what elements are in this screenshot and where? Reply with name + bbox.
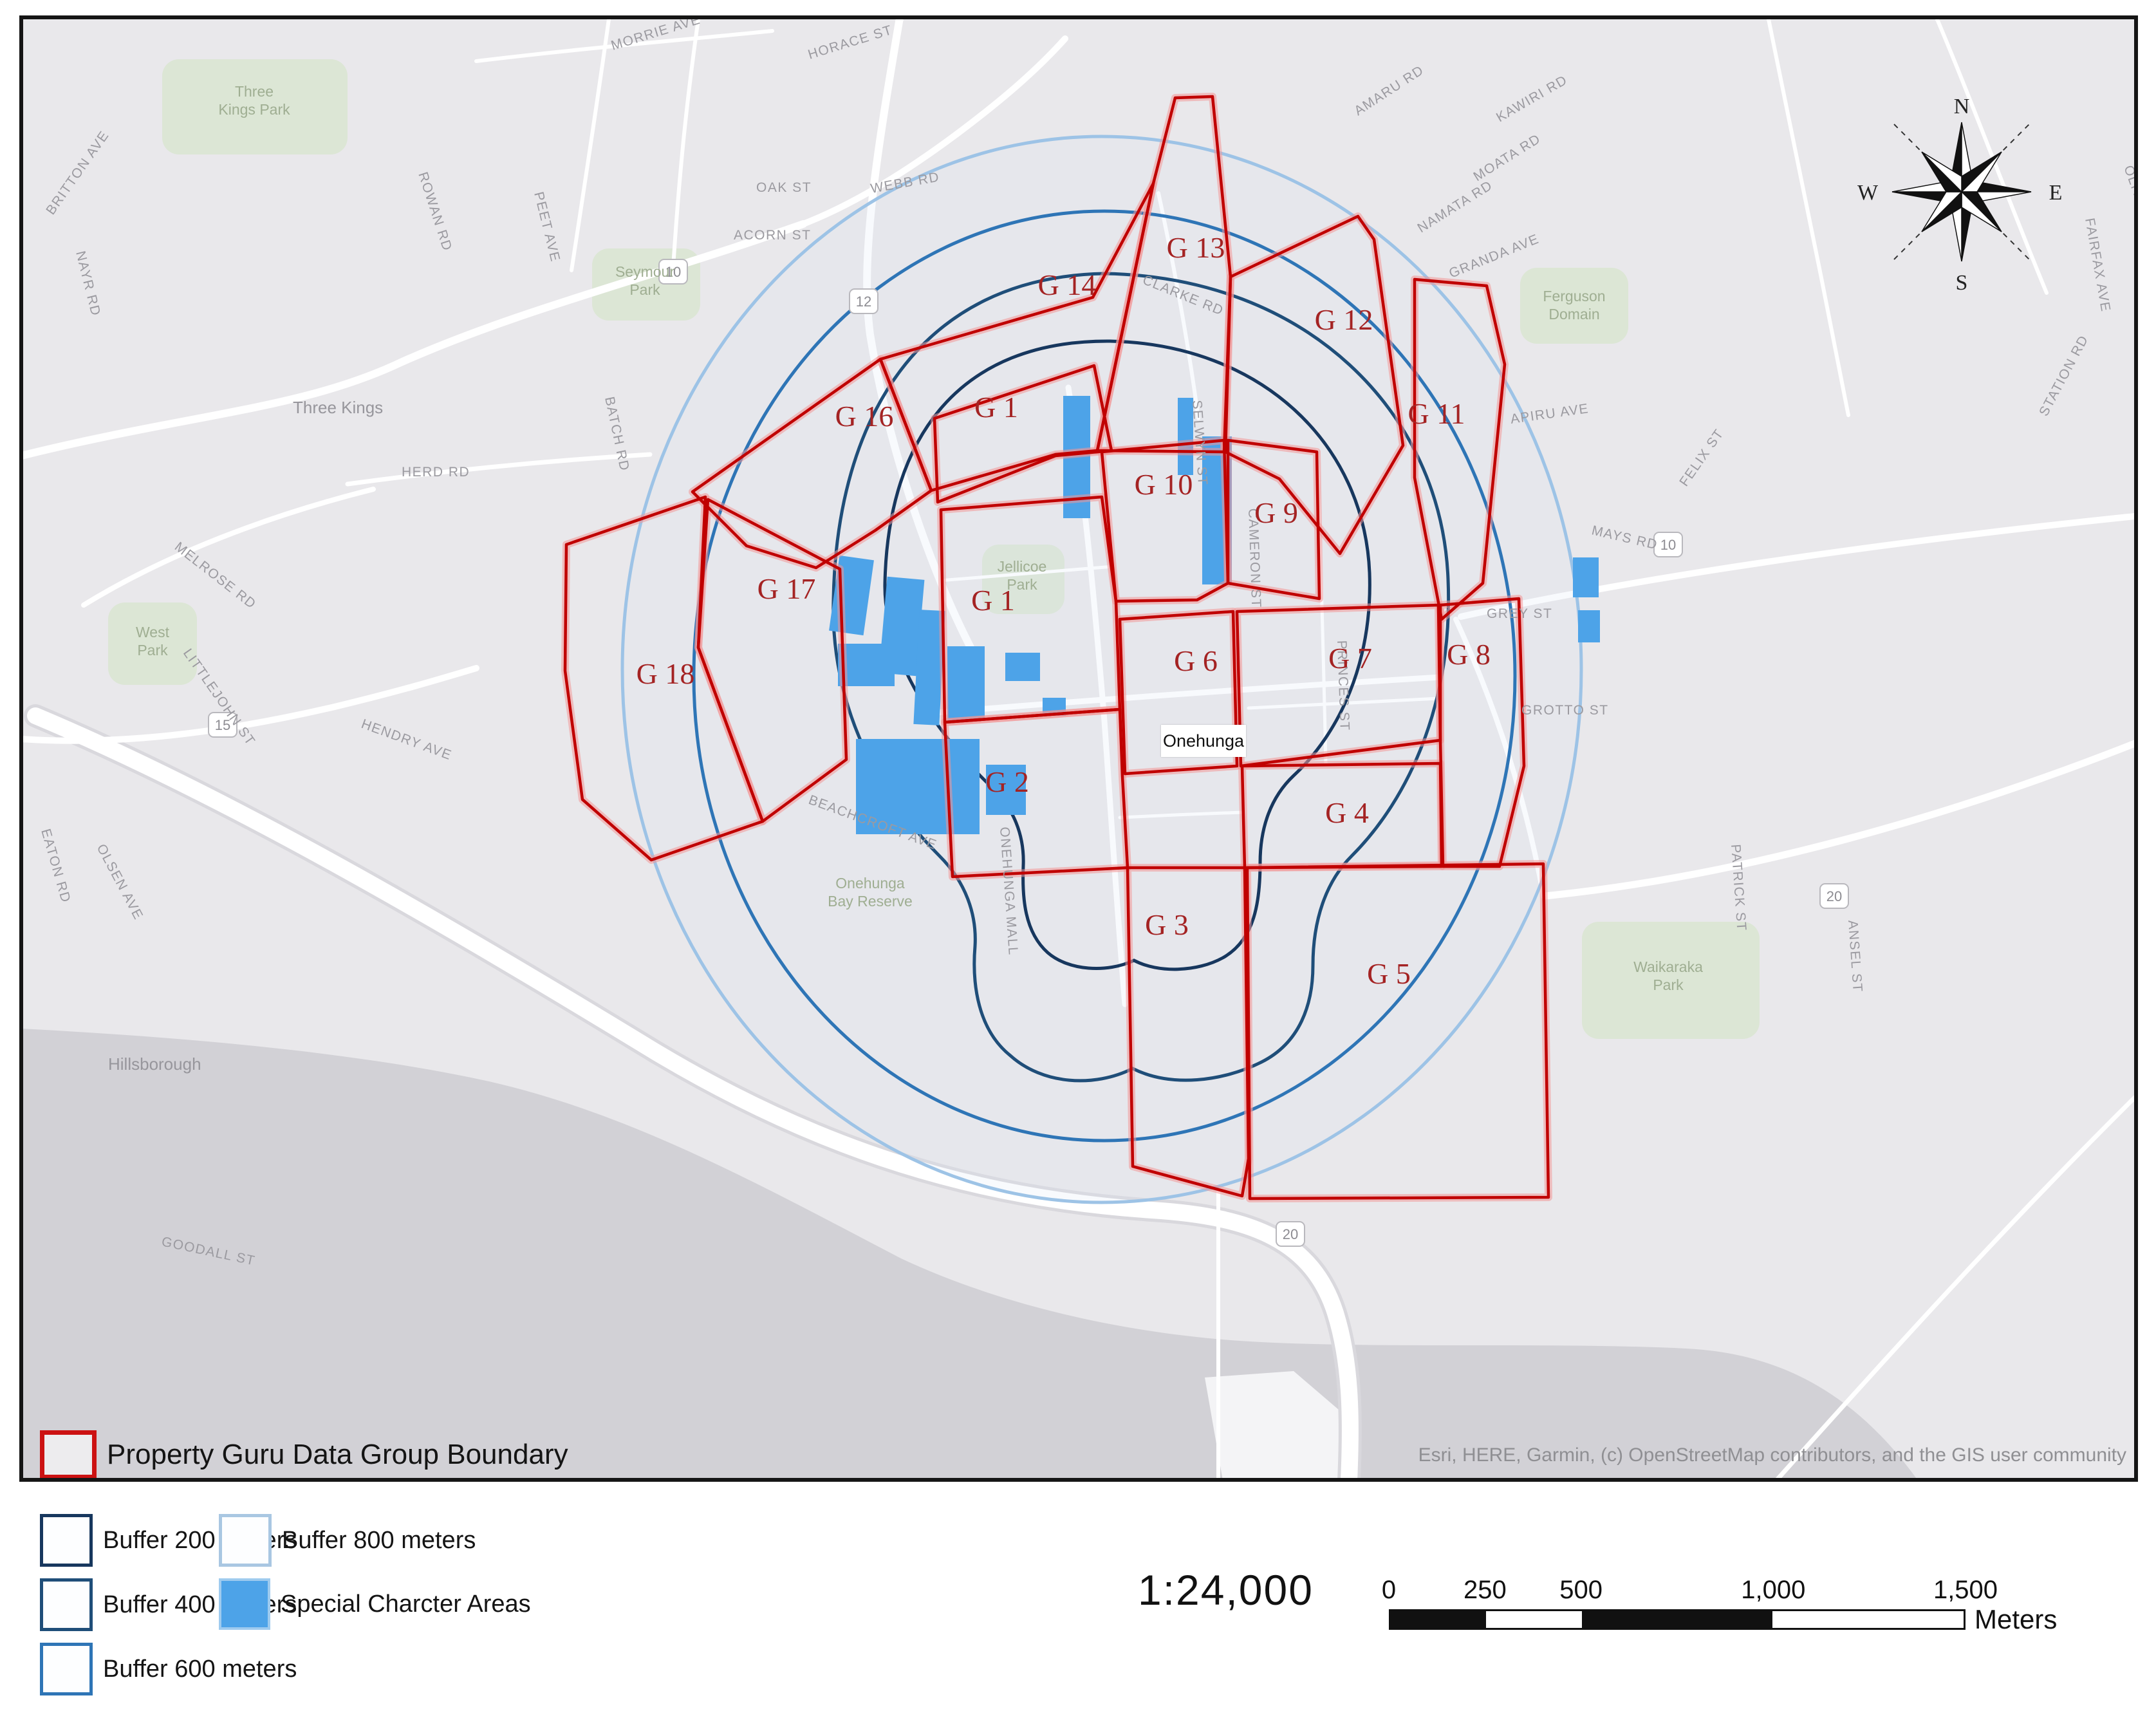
street-label: PEET AVE [531, 191, 562, 264]
park-label: Park [629, 281, 660, 298]
park-label: Jellicoe [998, 558, 1047, 575]
street-label: AMARU RD [1352, 62, 1427, 118]
street-label: STATION RD [2036, 333, 2092, 419]
street-label: GREY ST [1487, 606, 1552, 621]
special-character-area [947, 646, 985, 721]
place-label: Hillsborough [108, 1054, 201, 1074]
road-line [348, 454, 650, 484]
legend-item: Special Charcter Areas [219, 1578, 531, 1630]
street-label: MOATA RD [1471, 131, 1543, 184]
legend-swatch-outline [40, 1643, 93, 1695]
group-label: G 1 [974, 391, 1018, 424]
scale-bar-ticks: 02505001,0001,500 [1389, 1576, 1965, 1609]
scale-tick-label: 0 [1382, 1576, 1396, 1605]
scale-bar-segment [1772, 1611, 1964, 1628]
park-label: Kings Park [218, 101, 290, 118]
group-label: G 2 [985, 765, 1029, 798]
park-label: Domain [1548, 306, 1599, 322]
street-label: HENDRY AVE [359, 716, 454, 763]
group-label: G 4 [1325, 796, 1369, 829]
map-document: 101215102020MORRIE AVEHORACE STROWAN RDP… [0, 0, 2156, 1709]
street-label: MORRIE AVE [609, 15, 703, 53]
street-label: MAYS RD [1590, 523, 1659, 552]
park-label: Park [137, 642, 168, 658]
scale-bar-segment [1582, 1611, 1773, 1628]
legend-swatch-outline [40, 1578, 93, 1631]
group-boundary-label: Property Guru Data Group Boundary [107, 1439, 568, 1471]
highway-shield-number: 12 [856, 294, 871, 310]
street-label: OLIVE RD [2121, 163, 2138, 235]
group-boundary-swatch [40, 1430, 97, 1479]
road-line [1769, 19, 1848, 415]
street-label: MELROSE RD [172, 539, 259, 612]
group-label: G 5 [1367, 957, 1411, 990]
legend-item-label: Special Charcter Areas [281, 1591, 531, 1618]
compass-letter: W [1857, 181, 1879, 205]
legend-item: Buffer 600 meters [40, 1643, 297, 1695]
group-label: G 12 [1315, 303, 1373, 336]
street-label: APIRU AVE [1509, 401, 1590, 427]
group-label: G 10 [1135, 468, 1193, 501]
street-label: KAWIRI RD [1494, 73, 1570, 126]
place-label: Three Kings [293, 398, 383, 417]
scale-tick-label: 1,500 [1933, 1576, 1998, 1605]
street-label: OLSEN AVE [94, 842, 146, 922]
scale-bar-segment [1486, 1611, 1581, 1628]
road-line [1937, 19, 2047, 293]
highway-shield-number: 20 [1283, 1226, 1298, 1242]
highway-shield-number: 20 [1826, 888, 1842, 904]
special-character-area [1578, 610, 1600, 642]
park-label: Waikaraka [1633, 958, 1703, 975]
group-label: G 1 [971, 584, 1015, 617]
group-label: G 7 [1328, 642, 1372, 675]
scale-bar: 02505001,0001,500 Meters [1389, 1576, 1965, 1647]
street-label: NAYR RD [73, 250, 103, 318]
special-character-area [1573, 557, 1599, 597]
street-label: FAIRFAX AVE [2082, 217, 2113, 313]
park-label: Ferguson [1543, 288, 1605, 304]
scale-ratio-text: 1:24,000 [1138, 1574, 1357, 1614]
map-graphics: 101215102020MORRIE AVEHORACE STROWAN RDP… [19, 15, 2138, 1482]
legend-group-boundary: Property Guru Data Group Boundary [40, 1430, 568, 1479]
street-label: PATRICK ST [1728, 844, 1749, 932]
legend-swatch-outline [219, 1514, 272, 1567]
street-label: EATON RD [38, 827, 73, 904]
group-label: G 3 [1145, 908, 1189, 941]
street-label: HERD RD [402, 465, 470, 480]
scale-bar-bar [1389, 1609, 1965, 1630]
park-label: West [136, 624, 170, 640]
group-label: G 9 [1254, 496, 1298, 529]
compass-letter: E [2049, 181, 2063, 205]
street-label: BRITTON AVE [43, 128, 112, 218]
legend-item-label: Buffer 600 meters [103, 1656, 297, 1683]
scale-tick-label: 1,000 [1741, 1576, 1805, 1605]
park-label: Onehunga [835, 875, 905, 892]
street-label: BATCH RD [602, 395, 632, 472]
street-label: OAK ST [756, 180, 812, 195]
map-attribution: Esri, HERE, Garmin, (c) OpenStreetMap co… [1418, 1444, 2126, 1466]
road-line [673, 19, 698, 267]
onehunga-place-label: Onehunga [1161, 725, 1246, 757]
group-label: G 16 [835, 400, 894, 433]
scale-tick-label: 500 [1559, 1576, 1603, 1605]
road-line [1776, 1097, 2135, 1480]
legend-item-label: Buffer 800 meters [282, 1527, 476, 1555]
street-label: HORACE ST [806, 23, 895, 62]
park-label: Park [1653, 976, 1684, 993]
scale-bar-segment [1391, 1611, 1486, 1628]
scale-bar-unit: Meters [1975, 1604, 2057, 1635]
road-line [1545, 743, 2135, 896]
compass-letter: S [1956, 271, 1968, 295]
street-label: NAMATA RD [1415, 178, 1495, 236]
compass-letter: N [1954, 95, 1970, 118]
street-label: FELIX ST [1677, 426, 1727, 489]
legend-swatch-fill [219, 1578, 270, 1630]
street-label: ROWAN RD [415, 170, 454, 253]
group-label: G 13 [1167, 231, 1225, 264]
group-label: G 18 [637, 657, 695, 690]
park-label: Seymour [615, 263, 674, 280]
street-label: ACORN ST [734, 228, 812, 243]
group-label: G 6 [1174, 644, 1218, 677]
street-label: GROTTO ST [1521, 703, 1609, 718]
highway-shield-number: 10 [1660, 537, 1676, 553]
compass-rose: NSWE [1857, 95, 2062, 295]
group-label: G 8 [1447, 638, 1491, 671]
special-character-area [1005, 653, 1040, 681]
map-scale-ratio: 1:24,000 [1138, 1574, 1357, 1626]
legend-item: Buffer 800 meters [219, 1514, 476, 1567]
road-line [572, 19, 609, 270]
park-label: Three [235, 83, 274, 100]
map-canvas: 101215102020MORRIE AVEHORACE STROWAN RDP… [19, 15, 2138, 1482]
group-label: G 11 [1408, 397, 1465, 430]
park-label: Bay Reserve [828, 893, 913, 910]
group-label: G 17 [757, 572, 816, 605]
street-label: ANSEL ST [1845, 920, 1865, 993]
legend-swatch-outline [40, 1514, 93, 1567]
group-label: G 14 [1038, 268, 1097, 301]
scale-tick-label: 250 [1464, 1576, 1507, 1605]
